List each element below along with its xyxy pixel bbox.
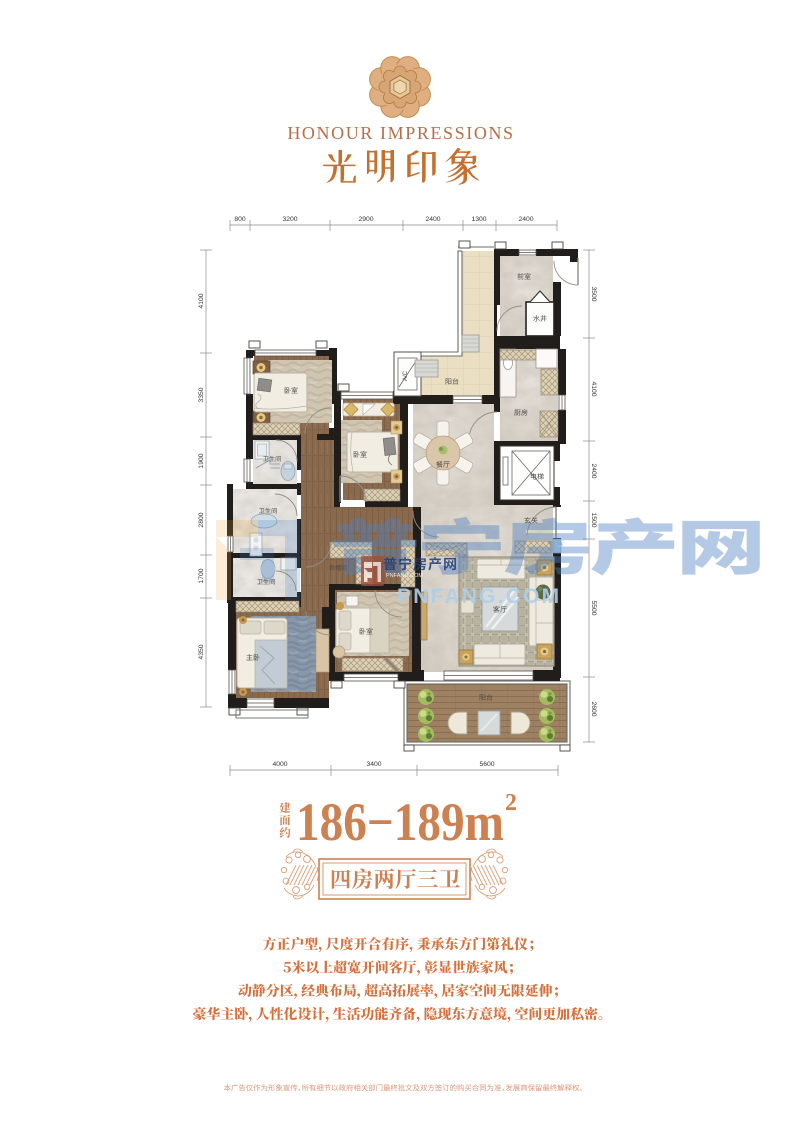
svg-text:4100: 4100 (590, 381, 597, 396)
svg-text:2800: 2800 (198, 512, 205, 527)
svg-text:2400: 2400 (518, 216, 533, 223)
svg-text:2400: 2400 (590, 463, 597, 478)
svg-text:1700: 1700 (198, 568, 205, 583)
svg-text:2400: 2400 (425, 216, 440, 223)
svg-text:1500: 1500 (590, 512, 597, 527)
svg-text:4000: 4000 (272, 761, 287, 768)
svg-text:1900: 1900 (198, 453, 205, 468)
svg-text:4100: 4100 (198, 293, 205, 308)
svg-text:PNFANG.COM: PNFANG.COM (397, 585, 561, 608)
svg-text:PNFANG.COM: PNFANG.COM (386, 573, 423, 579)
svg-text:800: 800 (234, 216, 246, 223)
svg-text:186−189m: 186−189m (296, 792, 504, 852)
svg-text:1300: 1300 (471, 216, 486, 223)
svg-text:5600: 5600 (479, 761, 494, 768)
svg-text:2900: 2900 (358, 216, 373, 223)
svg-text:5500: 5500 (590, 600, 597, 615)
svg-text:3350: 3350 (198, 387, 205, 402)
svg-text:3200: 3200 (282, 216, 297, 223)
svg-text:2600: 2600 (590, 701, 597, 716)
svg-text:3500: 3500 (590, 286, 597, 301)
svg-text:A/C: A/C (403, 370, 409, 381)
svg-text:4350: 4350 (198, 644, 205, 659)
svg-text:HONOUR IMPRESSIONS: HONOUR IMPRESSIONS (287, 123, 514, 143)
svg-text:2: 2 (505, 790, 517, 816)
svg-text:3400: 3400 (366, 761, 381, 768)
